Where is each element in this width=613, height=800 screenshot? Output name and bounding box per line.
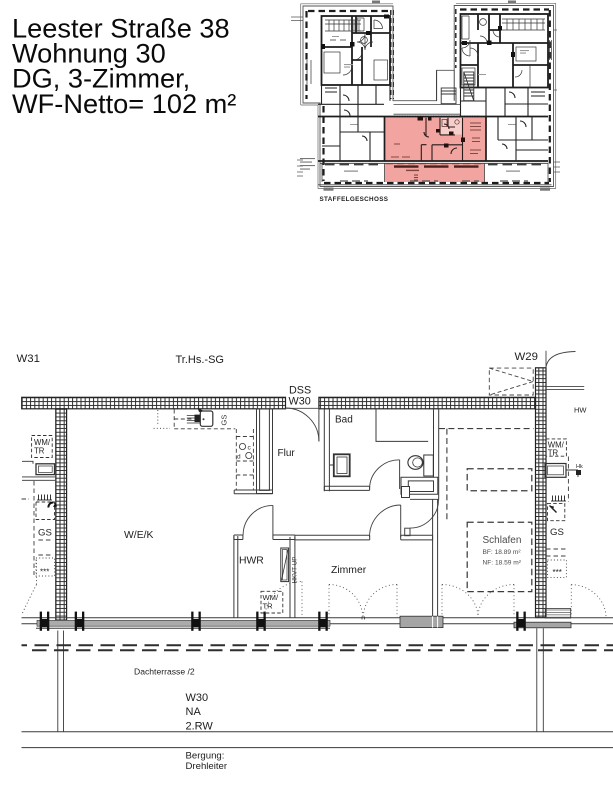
svg-text:Bad: Bad [335,415,353,426]
svg-text:STAFFELGESCHOSS: STAFFELGESCHOSS [320,196,389,203]
svg-text:Schlafen: Schlafen [483,535,522,546]
svg-text:TR: TR [34,446,45,455]
svg-text:W/E/K: W/E/K [124,530,154,541]
svg-text:Zimmer: Zimmer [331,565,367,576]
svg-text:GS: GS [38,528,52,539]
svg-text:***: *** [553,568,562,577]
svg-text:W29: W29 [515,351,538,363]
svg-text:Hk: Hk [576,464,583,470]
svg-text:W30: W30 [186,692,209,704]
svg-text:d: d [237,454,241,461]
svg-text:Bergung:: Bergung: [186,751,225,762]
svg-text:GS: GS [550,527,564,538]
svg-text:W30: W30 [289,396,311,408]
svg-text:Tr.Hs.-SG: Tr.Hs.-SG [176,354,224,366]
svg-text:Dachterrasse /2: Dachterrasse /2 [134,667,195,677]
svg-text:W31: W31 [17,353,40,365]
svg-text:TR: TR [263,601,274,610]
svg-text:GS: GS [220,415,229,426]
svg-text:HKVT-UP: HKVT-UP [292,557,299,584]
svg-text:2.RW: 2.RW [186,720,214,732]
svg-text:TR: TR [548,448,559,457]
svg-text:NF: 18.59 m²: NF: 18.59 m² [483,560,522,567]
svg-text:HW: HW [574,406,587,415]
svg-text:NA: NA [186,706,202,718]
svg-text:HWR: HWR [239,556,264,567]
svg-text:***: *** [40,568,49,577]
svg-text:WF-Netto= 102 m²: WF-Netto= 102 m² [12,88,236,119]
svg-text:BF: 18.89 m²: BF: 18.89 m² [483,549,522,556]
svg-text:Flur: Flur [278,448,296,459]
svg-text:Drehleiter: Drehleiter [186,761,228,772]
